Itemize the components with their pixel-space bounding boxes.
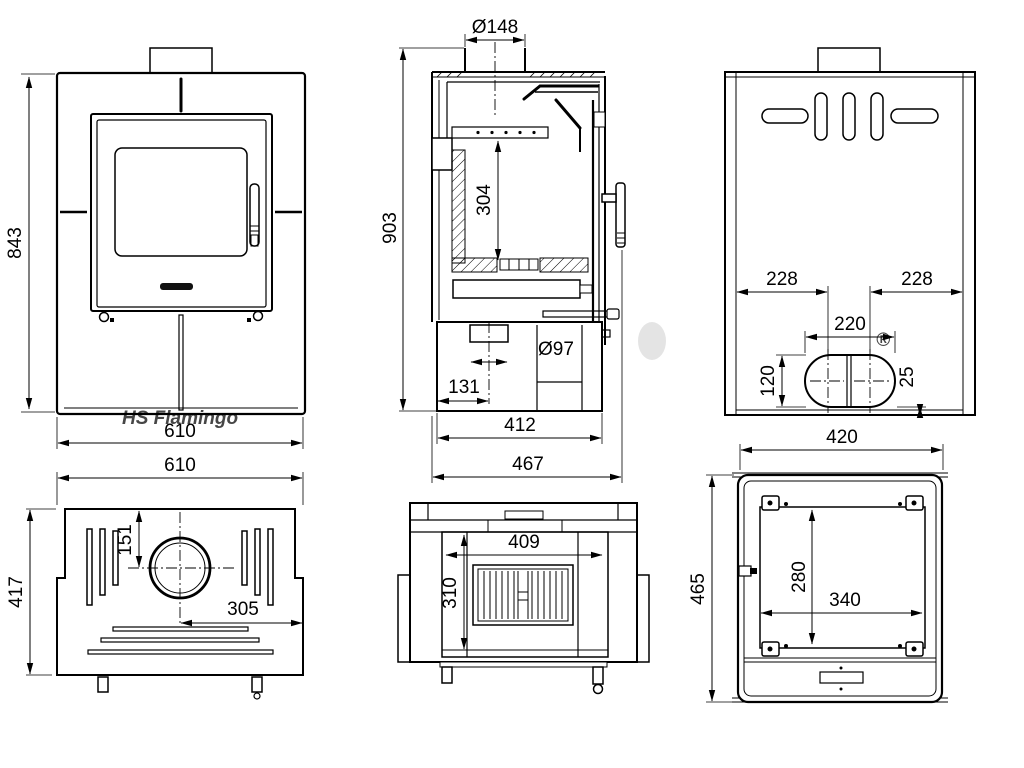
dim-opening-width: 409	[508, 532, 540, 553]
registered-trademark-symbol: ®	[876, 330, 890, 351]
base-strip	[440, 662, 607, 667]
dim-mount-span-width: 340	[829, 590, 861, 611]
dim-firebox-height: 304	[474, 184, 495, 216]
dim-rear-opening-width: 220	[834, 314, 866, 335]
dim-flue-from-side: 305	[227, 599, 259, 620]
stove-technical-drawing: 843 610 610 417 151 305	[0, 0, 1024, 768]
left-side-bracket	[398, 575, 410, 662]
bottom-view: 420 465 280 340	[688, 427, 948, 702]
section-floor-brick	[452, 258, 497, 272]
dim-overall-depth: 467	[512, 454, 544, 475]
top-right-foot	[252, 677, 262, 692]
open-front-view: 409 310	[398, 503, 649, 694]
rear-view: 228 228 220 120 25	[725, 48, 975, 415]
left-leg	[442, 667, 452, 683]
dim-overall-height: 903	[380, 212, 401, 244]
dim-flue-diameter: Ø148	[472, 17, 518, 38]
bottom-latch	[739, 566, 751, 576]
front-brand-logo	[160, 283, 193, 290]
dim-top-depth: 417	[6, 576, 27, 608]
flame-dot-icon	[638, 322, 666, 360]
section-deflector	[556, 100, 580, 128]
dim-front-height: 843	[5, 227, 26, 259]
front-left-hinge	[100, 313, 109, 322]
section-door-handle	[616, 183, 625, 247]
front-right-hinge	[254, 312, 263, 321]
dim-offset-left: 228	[766, 269, 798, 290]
dim-flue-from-rear: 151	[115, 524, 136, 556]
dim-bottom-width: 420	[826, 427, 858, 448]
dim-mount-span-depth: 280	[789, 561, 810, 593]
section-insulation	[452, 150, 465, 263]
drawing-canvas: 843 610 610 417 151 305	[0, 0, 1024, 768]
watermark-text: HS Flamingo	[122, 408, 238, 429]
dim-rear-opening-height: 120	[758, 365, 779, 397]
dim-bottom-outlet-offset: 131	[448, 377, 480, 398]
top-view: 610 417 151 305	[6, 455, 303, 699]
ash-drawer-handle	[820, 672, 863, 683]
section-view: Ø148	[380, 17, 625, 483]
dim-opening-height: 310	[440, 577, 461, 609]
front-view: 843 610	[5, 48, 305, 449]
dim-bottom-outlet-diameter: Ø97	[538, 339, 574, 360]
dim-bottom-depth: 465	[688, 573, 709, 605]
section-air-intake-box	[432, 138, 452, 170]
right-leg	[593, 667, 603, 684]
firebox-grate	[473, 565, 573, 625]
section-floor-brick	[540, 258, 588, 272]
dim-top-width: 610	[164, 455, 196, 476]
front-flue-stub	[150, 48, 212, 73]
dim-bottom-clearance: 25	[897, 366, 918, 387]
dim-body-depth: 412	[504, 415, 536, 436]
leg-caster	[594, 685, 603, 694]
section-ash-pan	[453, 280, 580, 298]
right-side-bracket	[637, 575, 649, 662]
top-left-foot	[98, 677, 108, 692]
front-door-frame	[91, 114, 272, 311]
dim-offset-right: 228	[901, 269, 933, 290]
rear-flue-stub	[818, 48, 880, 73]
